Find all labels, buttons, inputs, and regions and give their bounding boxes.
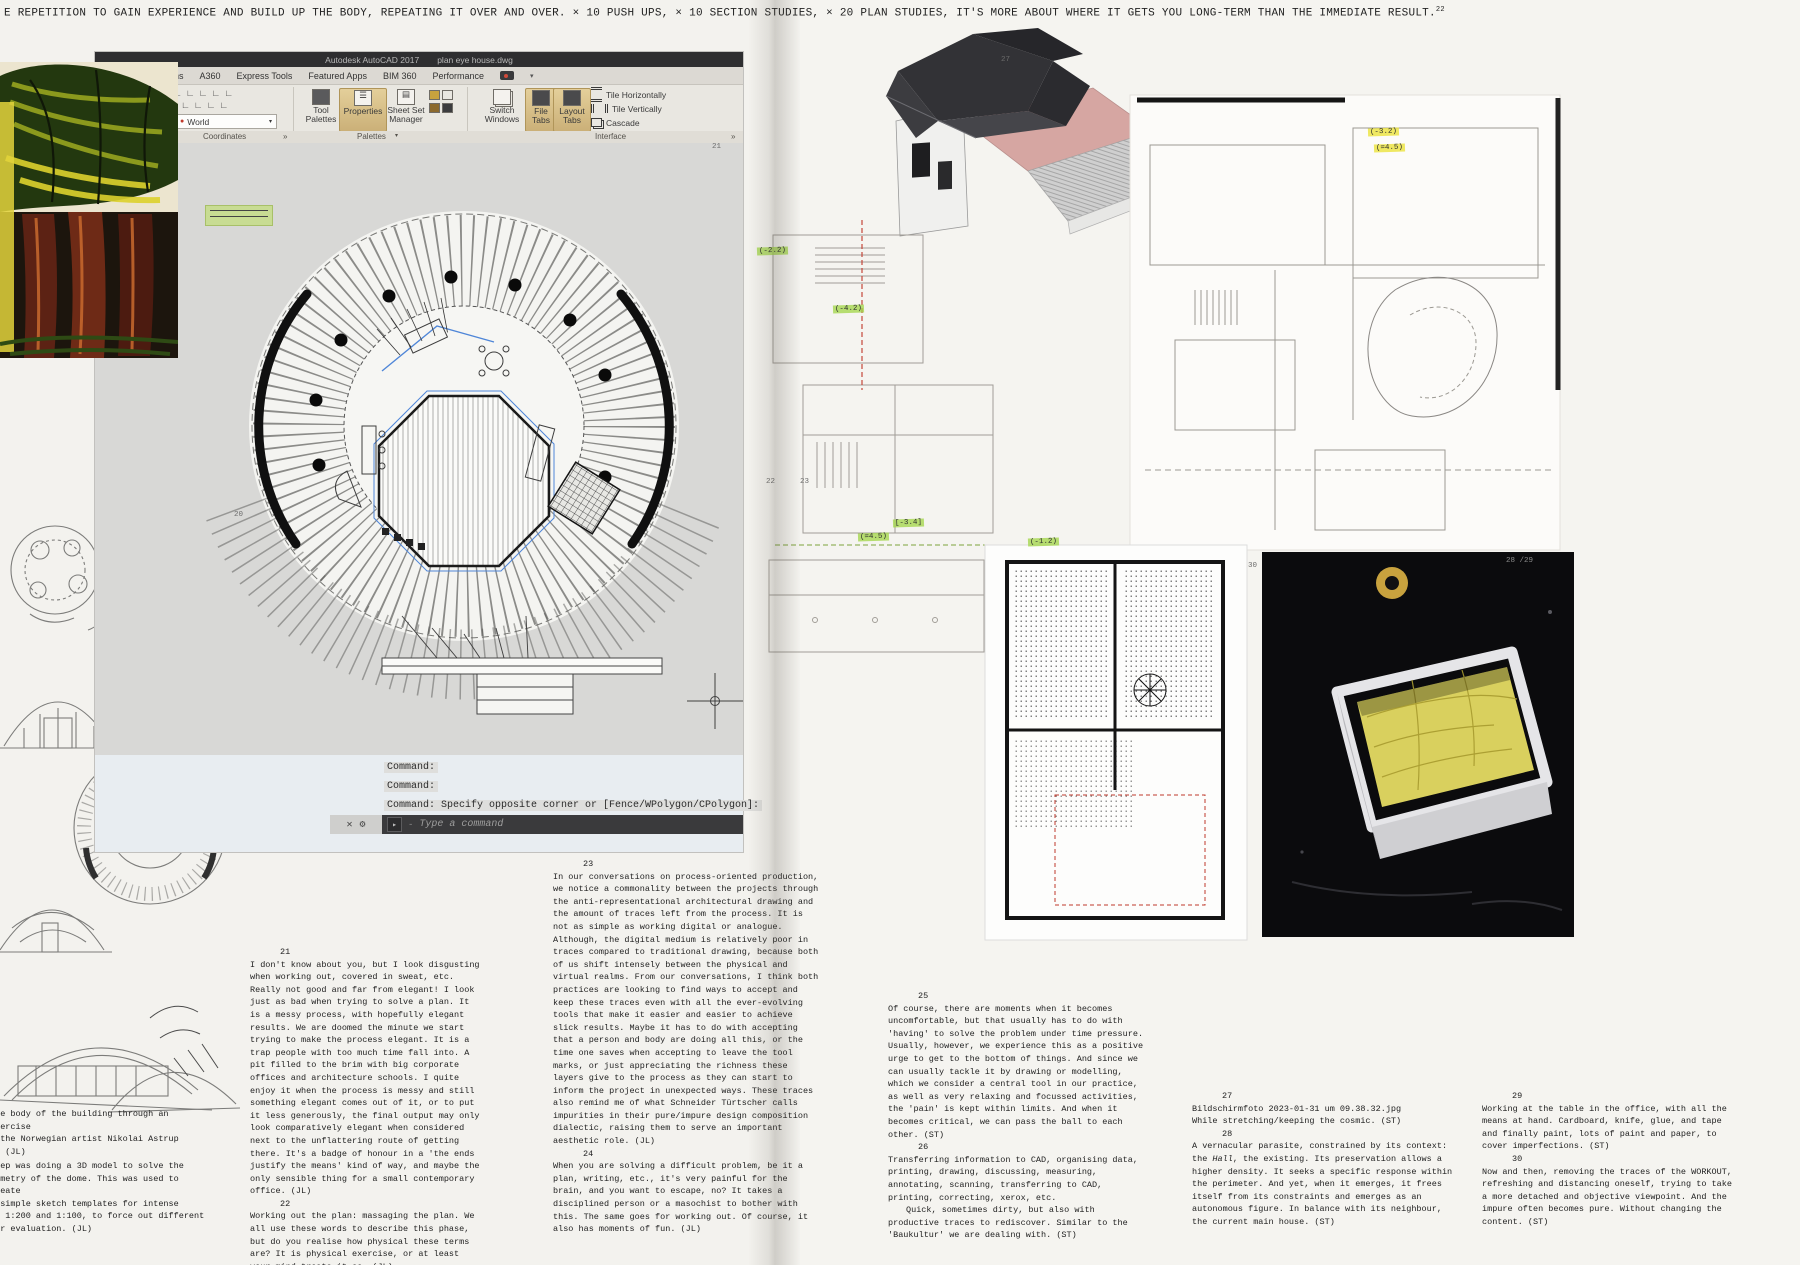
cascade-item[interactable]: Cascade: [591, 116, 640, 129]
ucs-icon-row-2[interactable]: ∟∟∟∟: [181, 100, 232, 110]
crayon-forest-sketch: [0, 62, 178, 358]
ucs-world-icon: ●: [180, 118, 184, 125]
sheet-set-manager-button[interactable]: ▤ Sheet Set Manager: [383, 88, 429, 130]
tab-performance[interactable]: Performance: [432, 71, 484, 81]
tab-featured-apps[interactable]: Featured Apps: [308, 71, 367, 81]
ucs-world-caret-icon: ▾: [269, 118, 272, 125]
green-note-4: (=4.5): [858, 532, 889, 541]
tile-vertically-icon: [591, 104, 608, 113]
coordinates-expand-icon[interactable]: »: [283, 132, 287, 141]
pencil-marker-21: 21: [712, 143, 721, 151]
autocad-ribbon: amed ∟▾ ∟∟∟∟∟ ∟∟∟∟ ● World ▾ Tool Palett…: [95, 85, 743, 131]
tab-express-tools[interactable]: Express Tools: [237, 71, 293, 81]
switch-windows-button[interactable]: Switch Windows: [479, 88, 525, 130]
footnote-column-29-30: 29 Working at the table in the office, w…: [1482, 1090, 1734, 1229]
footnote-number: 21: [280, 946, 482, 959]
crosshair-cursor: [687, 673, 743, 729]
command-toolbar: ✕ ⚙: [330, 815, 382, 834]
magazine-spread: E REPETITION TO GAIN EXPERIENCE AND BUIL…: [0, 0, 1800, 1265]
autocad-canvas[interactable]: [95, 143, 743, 755]
footnote-text-21: I don't know about you, but I look disgu…: [250, 959, 482, 1198]
tile-horizontally-icon: [591, 87, 602, 102]
header-footnote-ref: 22: [1436, 6, 1445, 14]
command-history-line-1: Command:: [384, 762, 438, 773]
yellow-note-2: (=4.5): [1374, 143, 1405, 152]
command-prompt-icon: ▸: [387, 817, 402, 832]
ucs-icon-row-1[interactable]: ∟∟∟∟∟: [173, 88, 237, 98]
tile-horizontally-label: Tile Horizontally: [606, 90, 666, 100]
palette-mini-icon-1[interactable]: [429, 90, 453, 102]
autocad-app-title: Autodesk AutoCAD 2017: [325, 55, 419, 65]
switch-windows-label: Switch Windows: [481, 106, 523, 124]
command-dash-icon: -: [408, 820, 413, 830]
pencil-marker-27: 27: [1001, 56, 1010, 64]
footnote-text-27-line1: Bildschirmfoto 2023-01-31 um 09.38.32.jp…: [1192, 1103, 1462, 1116]
footnote-number: 30: [1512, 1153, 1734, 1166]
autocad-command-area: Command: Command: Command: Specify oppos…: [95, 755, 743, 852]
pencil-marker-23: 23: [800, 478, 809, 486]
yellow-note-1: (-3.2): [1368, 127, 1399, 136]
pencil-marker-28-29: 28 /29: [1506, 557, 1533, 565]
autocad-ribbon-tabs: Add-ins A360 Express Tools Featured Apps…: [95, 67, 743, 85]
properties-button[interactable]: ☰ Properties: [339, 88, 387, 132]
footnote-text-27-line2: While stretching/keeping the cosmic. (ST…: [1192, 1115, 1462, 1128]
properties-icon: ☰: [354, 90, 372, 106]
record-icon[interactable]: [500, 71, 514, 80]
caption-astrup: the body of the building through an exer…: [0, 1108, 200, 1158]
coordinates-panel-label: Coordinates: [203, 132, 246, 141]
footnote-number: 22: [280, 1198, 482, 1211]
autocad-doc-title: plan eye house.dwg: [437, 55, 513, 65]
tile-vertically-label: Tile Vertically: [612, 104, 662, 114]
switch-windows-icon: [493, 89, 511, 105]
green-note-3: [-3.4]: [893, 518, 924, 527]
tool-palettes-button[interactable]: Tool Palettes: [301, 88, 341, 130]
footnote-text-26b: Quick, sometimes dirty, but also with pr…: [888, 1204, 1150, 1242]
wrench-icon[interactable]: ⚙: [360, 819, 366, 831]
tab-a360[interactable]: A360: [200, 71, 221, 81]
footnote-text-26: Transferring information to CAD, organis…: [888, 1154, 1150, 1204]
file-tabs-label: File Tabs: [528, 107, 554, 125]
footnote-column-21-22: 21 I don't know about you, but I look di…: [250, 946, 482, 1265]
footnote-number: 27: [1222, 1090, 1462, 1103]
cascade-label: Cascade: [606, 118, 640, 128]
tile-horizontally-item[interactable]: Tile Horizontally: [591, 88, 666, 101]
footnote-number: 28: [1222, 1128, 1462, 1141]
tabbar-caret-icon[interactable]: ▾: [530, 72, 534, 80]
footnote-28-italic: Hall: [1212, 1154, 1232, 1164]
autocad-titlebar: Autodesk AutoCAD 2017 plan eye house.dwg: [95, 52, 743, 67]
eye-house-plan-drawing: [95, 143, 743, 755]
highlighted-mini-plan: [205, 205, 273, 226]
pencil-marker-30: 30: [1248, 562, 1257, 570]
ucs-world-dropdown[interactable]: ● World ▾: [175, 114, 277, 129]
tool-palettes-icon: [312, 89, 330, 105]
interface-panel-label: Interface: [595, 132, 626, 141]
command-history-line-3: Command: Specify opposite corner or [Fen…: [384, 800, 762, 811]
footnote-text-25: Of course, there are moments when it bec…: [888, 1003, 1150, 1142]
footnote-number: 25: [918, 990, 1150, 1003]
layout-tabs-button[interactable]: Layout Tabs: [553, 88, 591, 132]
command-input-placeholder: Type a command: [419, 819, 503, 830]
tab-bim-360[interactable]: BIM 360: [383, 71, 417, 81]
close-icon[interactable]: ✕: [346, 819, 352, 831]
palettes-panel-label: Palettes: [357, 132, 386, 141]
running-header-text: E REPETITION TO GAIN EXPERIENCE AND BUIL…: [4, 8, 1436, 20]
footnote-text-30: Now and then, removing the traces of the…: [1482, 1166, 1734, 1229]
footnote-text-28: A vernacular parasite, constrained by it…: [1192, 1140, 1462, 1228]
footnote-text-22: Working out the plan: massaging the plan…: [250, 1210, 482, 1265]
footnote-column-27-28: 27 Bildschirmfoto 2023-01-31 um 09.38.32…: [1192, 1090, 1462, 1229]
green-note-5: (-1.2): [1028, 537, 1059, 546]
footnote-28-post: , the existing. Its preservation allows …: [1192, 1154, 1452, 1227]
autocad-window: Autodesk AutoCAD 2017 plan eye house.dwg…: [95, 52, 743, 852]
cascade-icon: [591, 118, 602, 127]
model-photo: [1262, 552, 1574, 937]
pencil-marker-20: 20: [234, 511, 243, 519]
sheet-set-manager-icon: ▤: [397, 89, 415, 105]
sheet-set-manager-label: Sheet Set Manager: [385, 106, 427, 124]
footnote-column-25-26: 25 Of course, there are moments when it …: [888, 990, 1150, 1242]
file-tabs-icon: [532, 90, 550, 106]
properties-label: Properties: [344, 107, 383, 116]
footnote-number: 26: [918, 1141, 1150, 1154]
command-input-bar[interactable]: ▸ - Type a command: [382, 815, 743, 834]
tool-palettes-label: Tool Palettes: [303, 106, 339, 124]
layout-tabs-label: Layout Tabs: [556, 107, 588, 125]
ucs-world-value: World: [187, 117, 209, 127]
green-note-2: (-4.2): [833, 304, 864, 313]
footnote-number: 29: [1512, 1090, 1734, 1103]
command-history-line-2: Command:: [384, 781, 438, 792]
palettes-caret-icon[interactable]: ▾: [395, 132, 398, 139]
running-header: E REPETITION TO GAIN EXPERIENCE AND BUIL…: [4, 6, 1404, 20]
palette-mini-icon-2[interactable]: [429, 103, 453, 115]
page-fold-shadow: [748, 0, 800, 1265]
caption-3d-model: step was doing a 3D model to solve the e…: [0, 1160, 210, 1236]
interface-expand-icon[interactable]: »: [731, 132, 735, 141]
tile-vertically-item[interactable]: Tile Vertically: [591, 102, 662, 115]
layout-tabs-icon: [563, 90, 581, 106]
footnote-text-29: Working at the table in the office, with…: [1482, 1103, 1734, 1153]
